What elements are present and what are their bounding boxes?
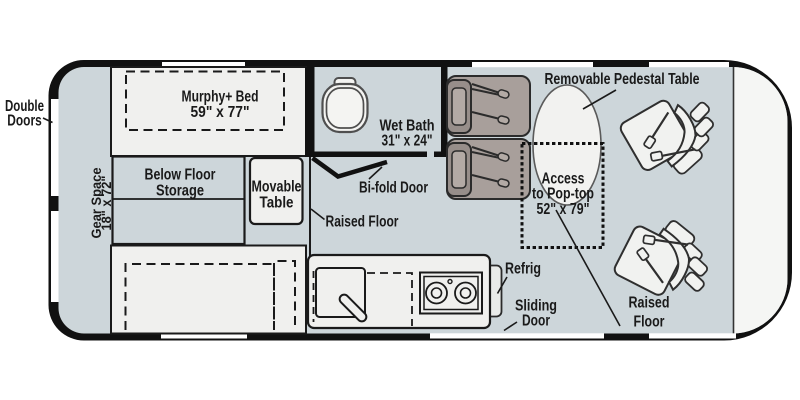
svg-text:Door: Door — [522, 313, 550, 330]
svg-text:Movable: Movable — [252, 179, 302, 196]
svg-text:Storage: Storage — [156, 183, 204, 200]
svg-text:Bi-fold Door: Bi-fold Door — [359, 179, 428, 196]
svg-text:Refrig: Refrig — [505, 261, 541, 278]
svg-text:Removable Pedestal Table: Removable Pedestal Table — [545, 71, 700, 88]
svg-text:Floor: Floor — [634, 314, 665, 331]
svg-text:Doors: Doors — [7, 112, 42, 129]
svg-text:59" x 77": 59" x 77" — [191, 104, 250, 121]
svg-text:Murphy+ Bed: Murphy+ Bed — [182, 89, 259, 106]
svg-text:Table: Table — [260, 195, 294, 212]
svg-text:Below Floor: Below Floor — [145, 167, 216, 184]
svg-text:52" x 79": 52" x 79" — [537, 201, 590, 218]
svg-text:31" x 24": 31" x 24" — [382, 133, 433, 150]
svg-text:Raised Floor: Raised Floor — [326, 214, 399, 231]
svg-text:Raised: Raised — [629, 295, 670, 312]
